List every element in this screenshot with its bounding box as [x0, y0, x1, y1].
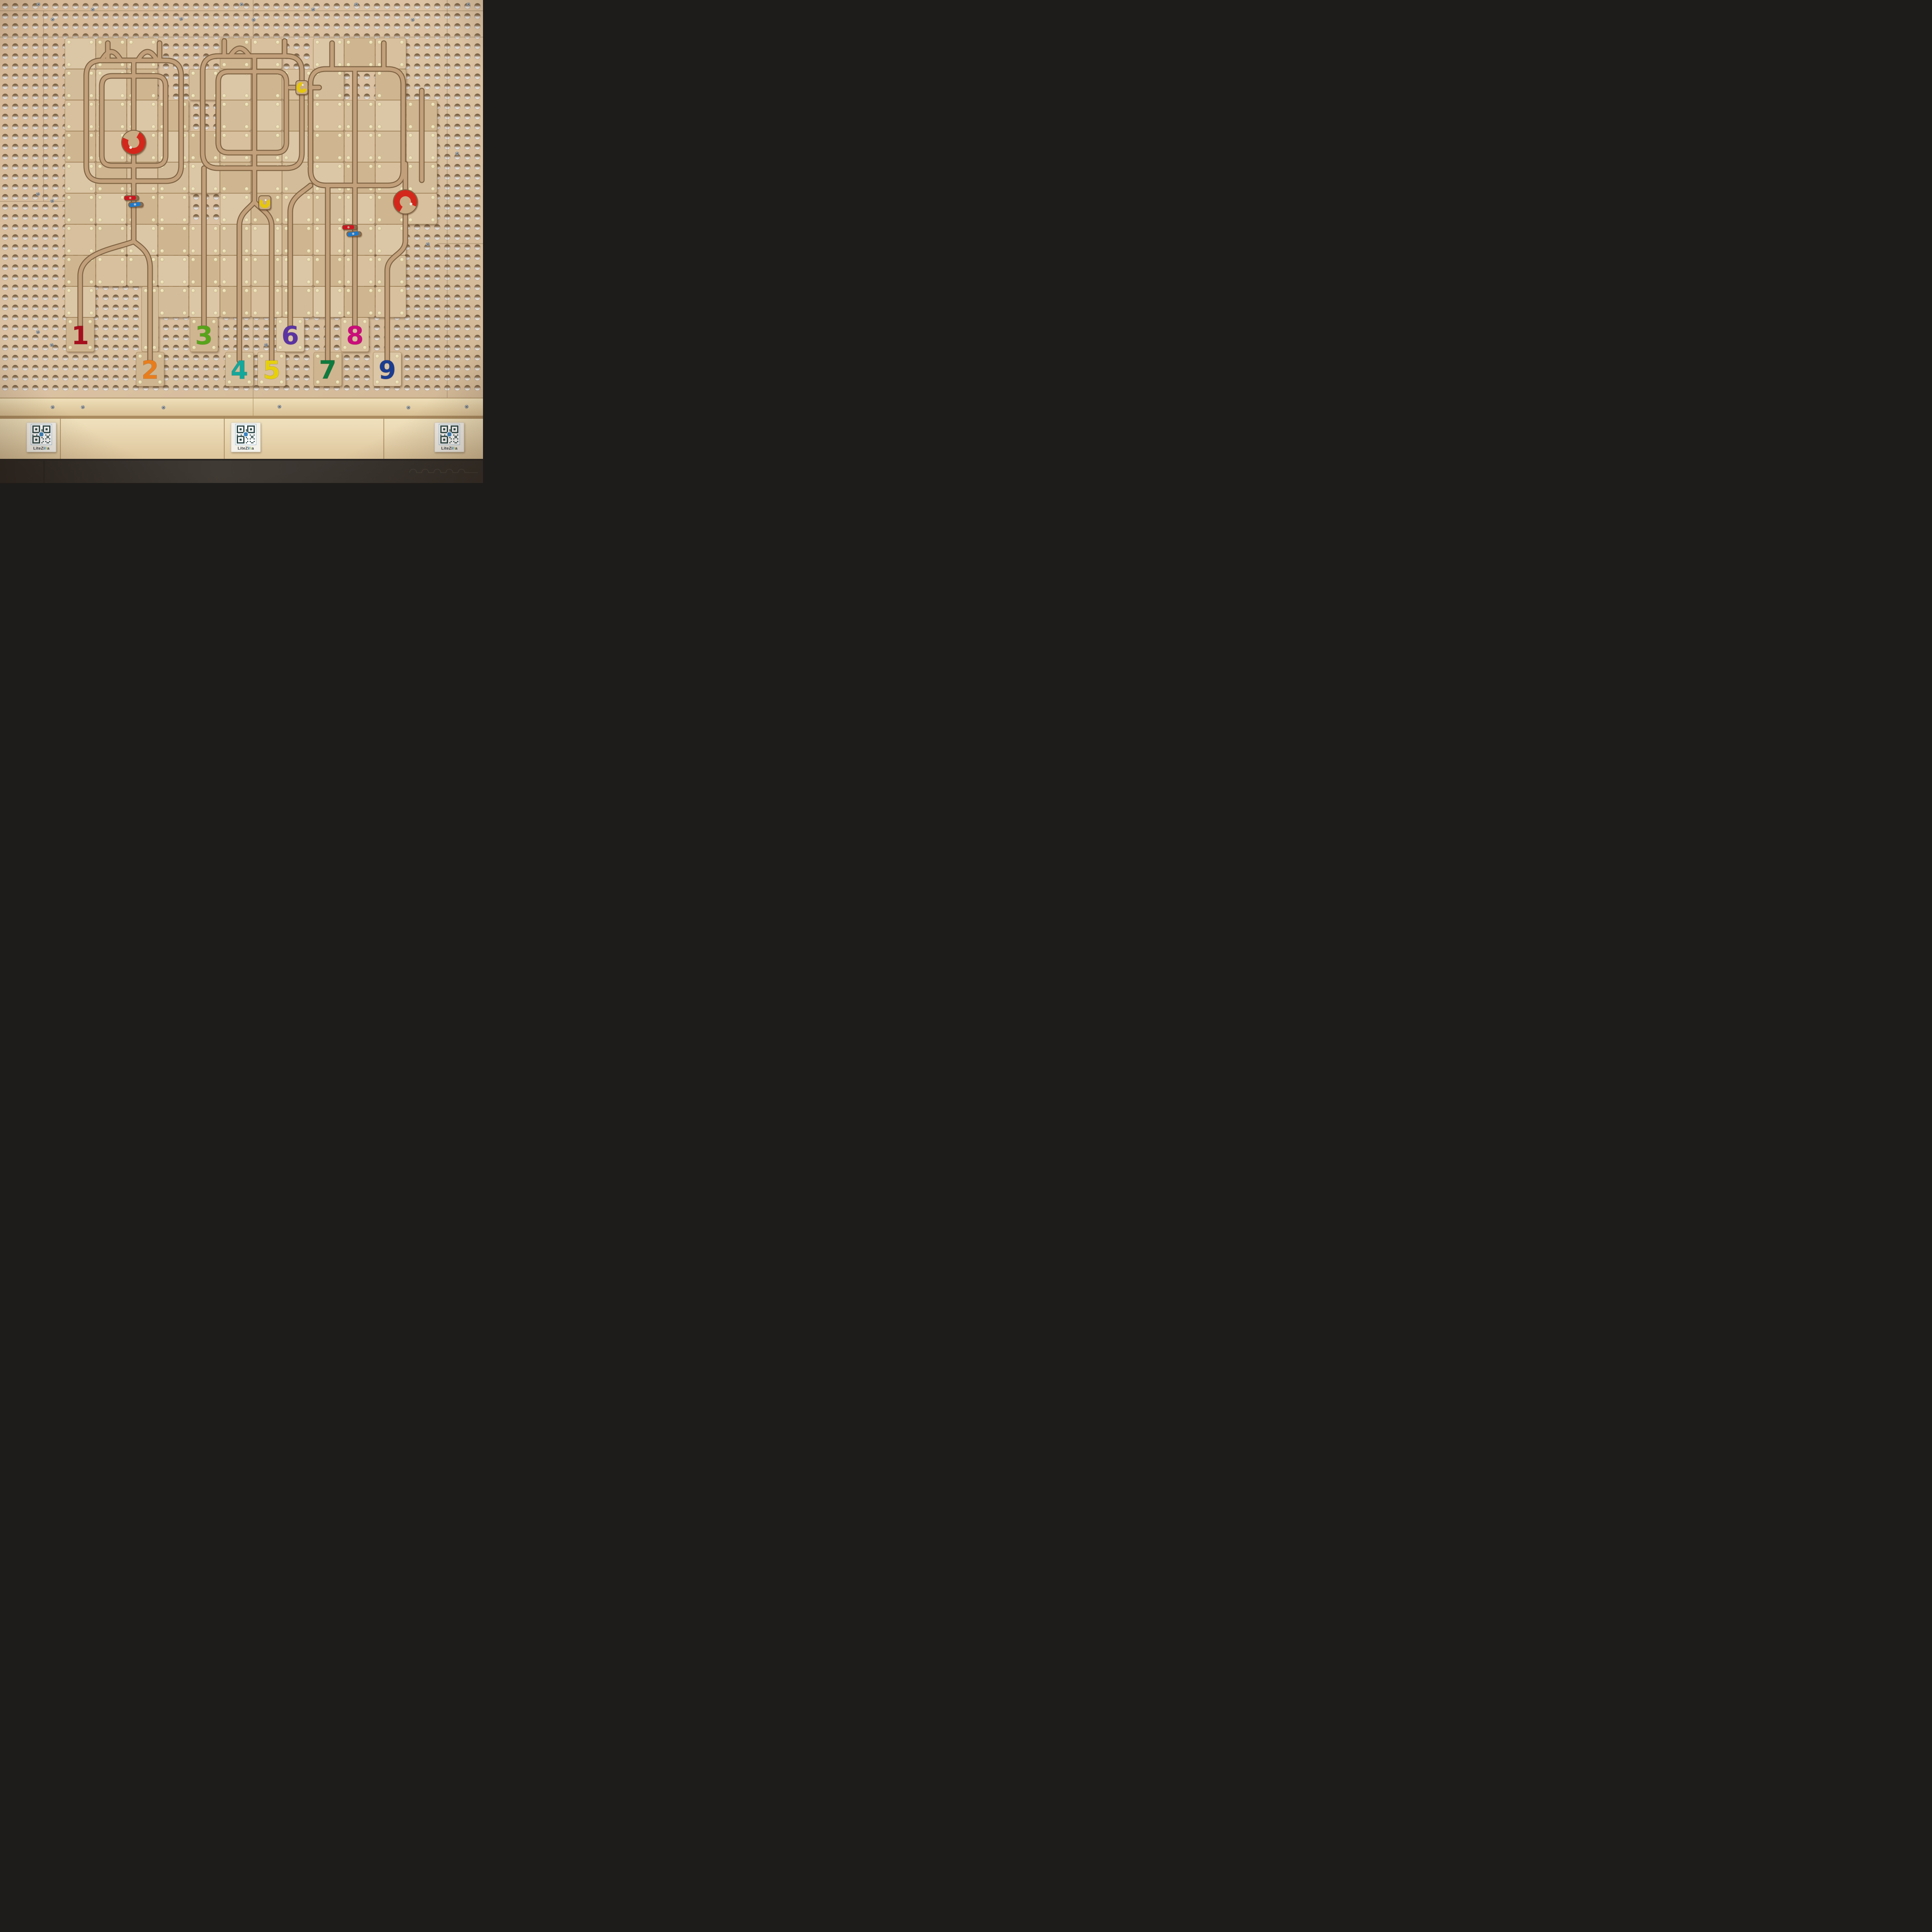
vignette [0, 0, 483, 483]
photo-marble-run-wall: LiteZilla 123456789 [0, 0, 483, 483]
marble-run-scene: LiteZilla 123456789 [0, 0, 483, 483]
